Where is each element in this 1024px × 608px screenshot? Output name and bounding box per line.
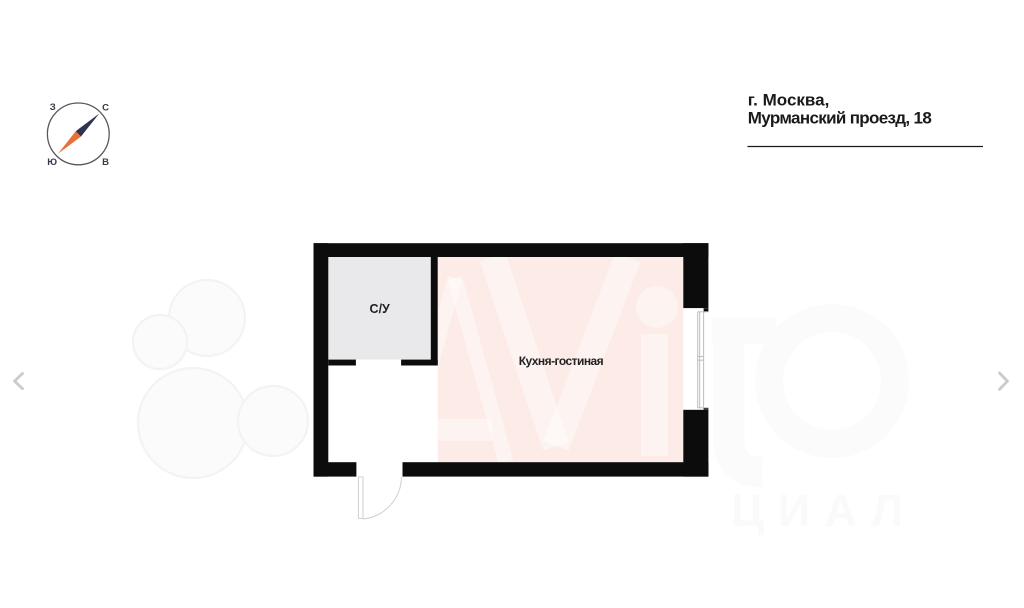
svg-text:Ю: Ю [47,157,57,168]
svg-text:г. Москва,: г. Москва, [748,91,830,110]
svg-text:С: С [102,102,109,113]
svg-text:С/У: С/У [370,302,391,316]
svg-text:З: З [50,102,56,113]
svg-text:В: В [102,157,109,168]
svg-text:Кухня-гостиная: Кухня-гостиная [519,354,604,368]
svg-text:Мурманский проезд, 18: Мурманский проезд, 18 [748,109,932,128]
